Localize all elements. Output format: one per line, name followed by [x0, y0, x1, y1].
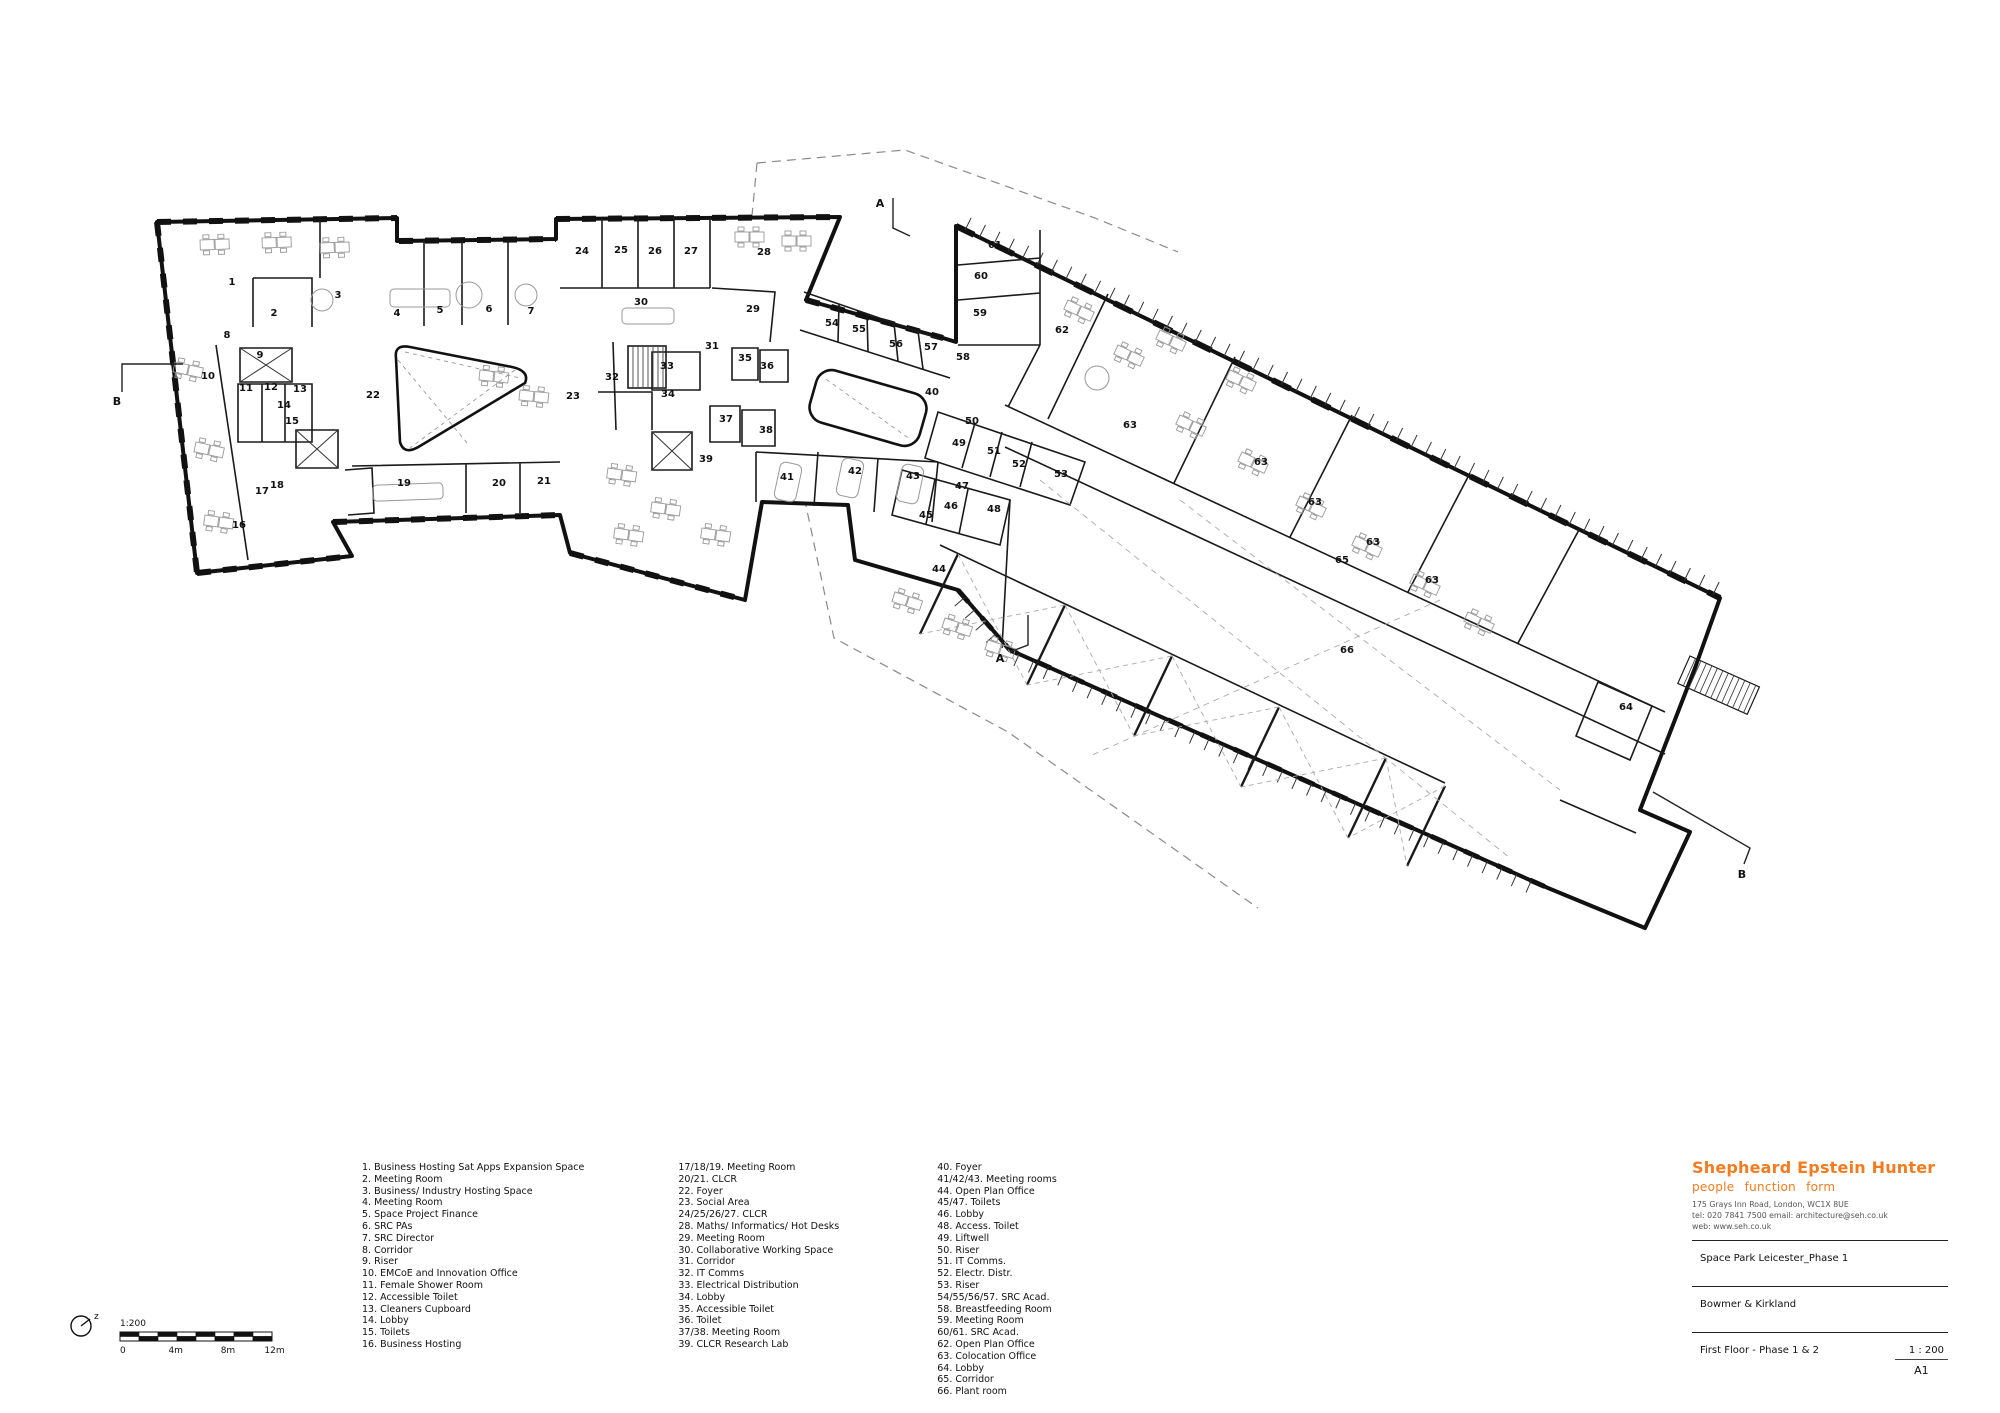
title-block: Shepheard Epstein Hunter people function… — [1692, 1158, 1948, 1391]
legend-item: 59. Meeting Room — [937, 1315, 1057, 1327]
room-number-label: 35 — [738, 353, 752, 364]
legend-item: 52. Electr. Distr. — [937, 1268, 1057, 1280]
legend-item: 51. IT Comms. — [937, 1256, 1057, 1268]
room-number-label: 34 — [661, 389, 675, 400]
room-number-label: 63 — [1254, 457, 1268, 468]
legend-item: 63. Colocation Office — [937, 1351, 1057, 1363]
legend-item: 54/55/56/57. SRC Acad. — [937, 1292, 1057, 1304]
scale-tick-label: 0 — [120, 1346, 126, 1356]
legend-item: 4. Meeting Room — [362, 1197, 584, 1209]
legend-item: 12. Accessible Toilet — [362, 1292, 584, 1304]
drawing-sheet: 1234567891011121314151617181920212223242… — [0, 0, 2000, 1413]
legend-column-3: 40. Foyer41/42/43. Meeting rooms44. Open… — [937, 1162, 1057, 1398]
legend-item: 9. Riser — [362, 1256, 584, 1268]
legend-item: 48. Access. Toilet — [937, 1221, 1057, 1233]
room-number-label: 56 — [889, 339, 903, 350]
room-number-label: 10 — [201, 371, 215, 382]
legend-item: 36. Toilet — [678, 1315, 839, 1327]
room-number-label: 43 — [906, 471, 920, 482]
room-number-label: 4 — [394, 308, 401, 319]
legend-item: 17/18/19. Meeting Room — [678, 1162, 839, 1174]
legend-item: 39. CLCR Research Lab — [678, 1339, 839, 1351]
legend-item: 50. Riser — [937, 1245, 1057, 1257]
room-number-label: 65 — [1335, 555, 1349, 566]
architect-tagline: people function form — [1692, 1180, 1948, 1194]
room-number-label: 6 — [486, 304, 493, 315]
room-number-label: 14 — [277, 400, 291, 411]
client-name: Bowmer & Kirkland — [1692, 1286, 1948, 1324]
room-number-label: 44 — [932, 564, 946, 575]
room-number-label: 2 — [271, 308, 278, 319]
room-number-label: 21 — [537, 476, 551, 487]
legend-item: 30. Collaborative Working Space — [678, 1245, 839, 1257]
room-number-label: 49 — [952, 438, 966, 449]
section-marker-label: A — [876, 197, 885, 210]
legend-item: 13. Cleaners Cupboard — [362, 1304, 584, 1316]
room-number-label: 64 — [1619, 702, 1633, 713]
legend-item: 28. Maths/ Informatics/ Hot Desks — [678, 1221, 839, 1233]
room-number-label: 22 — [366, 390, 380, 401]
room-number-label: 12 — [264, 382, 278, 393]
scale-tick-label: 4m — [168, 1346, 183, 1356]
room-number-label: 25 — [614, 245, 628, 256]
legend-item: 10. EMCoE and Innovation Office — [362, 1268, 584, 1280]
room-number-label: 40 — [925, 387, 939, 398]
legend-item: 66. Plant room — [937, 1386, 1057, 1398]
room-number-label: 17 — [255, 486, 269, 497]
room-number-label: 27 — [684, 246, 698, 257]
room-number-label: 15 — [285, 416, 299, 427]
legend-item: 34. Lobby — [678, 1292, 839, 1304]
room-number-label: 62 — [1055, 325, 1069, 336]
room-number-label: 28 — [757, 247, 771, 258]
legend-item: 5. Space Project Finance — [362, 1209, 584, 1221]
legend-item: 31. Corridor — [678, 1256, 839, 1268]
legend-item: 22. Foyer — [678, 1186, 839, 1198]
room-number-label: 48 — [987, 504, 1001, 515]
room-number-label: 8 — [224, 330, 231, 341]
room-number-label: 13 — [293, 384, 307, 395]
room-number-label: 18 — [270, 480, 284, 491]
room-number-label: 54 — [825, 318, 839, 329]
legend-item: 20/21. CLCR — [678, 1174, 839, 1186]
room-number-label: 46 — [944, 501, 958, 512]
north-arrow-icon — [71, 1316, 91, 1336]
architect-logo: Shepheard Epstein Hunter — [1692, 1158, 1948, 1177]
legend-column-1: 1. Business Hosting Sat Apps Expansion S… — [362, 1162, 584, 1398]
legend-item: 11. Female Shower Room — [362, 1280, 584, 1292]
architect-address: 175 Grays Inn Road, London, WC1X 8UE — [1692, 1199, 1948, 1210]
desk-cluster — [940, 613, 974, 641]
legend-item: 65. Corridor — [937, 1374, 1057, 1386]
room-number-label: 45 — [919, 510, 933, 521]
room-number-label: 50 — [965, 416, 979, 427]
legend-item: 24/25/26/27. CLCR — [678, 1209, 839, 1221]
legend-item: 49. Liftwell — [937, 1233, 1057, 1245]
room-number-label: 19 — [397, 478, 411, 489]
legend-item: 35. Accessible Toilet — [678, 1304, 839, 1316]
legend-item: 14. Lobby — [362, 1315, 584, 1327]
legend-item: 15. Toilets — [362, 1327, 584, 1339]
legend-item: 16. Business Hosting — [362, 1339, 584, 1351]
drawing-title: First Floor - Phase 1 & 2 — [1700, 1345, 1819, 1356]
room-number-label: 63 — [1425, 575, 1439, 586]
room-number-label: 38 — [759, 425, 773, 436]
paper-size: A1 — [1895, 1360, 1948, 1377]
legend-column-2: 17/18/19. Meeting Room20/21. CLCR22. Foy… — [678, 1162, 839, 1398]
scale-ratio-label: 1:200 — [120, 1319, 146, 1329]
legend-item: 62. Open Plan Office — [937, 1339, 1057, 1351]
room-number-label: 7 — [528, 306, 535, 317]
legend-item: 60/61. SRC Acad. — [937, 1327, 1057, 1339]
room-number-label: 51 — [987, 446, 1001, 457]
architect-contact: tel: 020 7841 7500 email: architecture@s… — [1692, 1210, 1948, 1221]
legend-item: 45/47. Toilets — [937, 1197, 1057, 1209]
section-marker-label: B — [113, 395, 121, 408]
legend-item: 2. Meeting Room — [362, 1174, 584, 1186]
room-number-label: 1 — [229, 277, 236, 288]
legend-item: 44. Open Plan Office — [937, 1186, 1057, 1198]
room-number-label: 55 — [852, 324, 866, 335]
legend-item: 6. SRC PAs — [362, 1221, 584, 1233]
scale-tick-label: 8m — [221, 1346, 236, 1356]
legend-item: 3. Business/ Industry Hosting Space — [362, 1186, 584, 1198]
room-number-label: 32 — [605, 372, 619, 383]
room-number-label: 58 — [956, 352, 970, 363]
room-number-label: 26 — [648, 246, 662, 257]
legend-item: 64. Lobby — [937, 1363, 1057, 1375]
room-number-label: 20 — [492, 478, 506, 489]
room-number-label: 23 — [566, 391, 580, 402]
room-number-label: 57 — [924, 342, 938, 353]
room-number-label: 37 — [719, 414, 733, 425]
room-number-label: 33 — [660, 361, 674, 372]
room-number-label: 39 — [699, 454, 713, 465]
room-number-label: 53 — [1054, 469, 1068, 480]
room-number-label: 41 — [780, 472, 794, 483]
room-number-label: 66 — [1340, 645, 1354, 656]
room-number-label: 16 — [232, 520, 246, 531]
legend-item: 53. Riser — [937, 1280, 1057, 1292]
room-number-label: 52 — [1012, 459, 1026, 470]
room-key-legend: 1. Business Hosting Sat Apps Expansion S… — [362, 1162, 1057, 1398]
legend-item: 58. Breastfeeding Room — [937, 1304, 1057, 1316]
legend-item: 7. SRC Director — [362, 1233, 584, 1245]
legend-item: 33. Electrical Distribution — [678, 1280, 839, 1292]
room-number-label: 63 — [1123, 420, 1137, 431]
legend-item: 32. IT Comms — [678, 1268, 839, 1280]
room-number-label: 11 — [239, 383, 253, 394]
legend-item: 40. Foyer — [937, 1162, 1057, 1174]
north-label: z — [94, 1312, 99, 1322]
room-number-label: 3 — [335, 290, 342, 301]
room-number-label: 63 — [1366, 537, 1380, 548]
room-number-label: 47 — [955, 481, 969, 492]
room-number-label: 29 — [746, 304, 760, 315]
room-number-label: 63 — [1308, 497, 1322, 508]
room-number-label: 59 — [973, 308, 987, 319]
room-number-label: 30 — [634, 297, 648, 308]
legend-item: 8. Corridor — [362, 1245, 584, 1257]
legend-item: 41/42/43. Meeting rooms — [937, 1174, 1057, 1186]
legend-item: 46. Lobby — [937, 1209, 1057, 1221]
scale-bar — [120, 1332, 272, 1341]
room-number-label: 9 — [257, 350, 264, 361]
legend-item: 29. Meeting Room — [678, 1233, 839, 1245]
room-number-label: 36 — [760, 361, 774, 372]
room-number-label: 31 — [705, 341, 719, 352]
room-number-label: 24 — [575, 246, 589, 257]
legend-item: 37/38. Meeting Room — [678, 1327, 839, 1339]
legend-item: 1. Business Hosting Sat Apps Expansion S… — [362, 1162, 584, 1174]
room-number-label: 5 — [437, 305, 444, 316]
desk-cluster — [890, 587, 924, 615]
legend-item: 23. Social Area — [678, 1197, 839, 1209]
room-number-label: 61 — [988, 240, 1002, 251]
room-number-label: 60 — [974, 271, 988, 282]
project-title: Space Park Leicester_Phase 1 — [1692, 1240, 1948, 1278]
architect-web: web: www.seh.co.uk — [1692, 1221, 1948, 1232]
drawing-scale: 1 : 200 — [1895, 1345, 1948, 1360]
room-number-label: 42 — [848, 466, 862, 477]
scale-tick-label: 12m — [264, 1346, 284, 1356]
section-marker-label: B — [1738, 868, 1746, 881]
section-marker-label: A — [996, 652, 1005, 665]
